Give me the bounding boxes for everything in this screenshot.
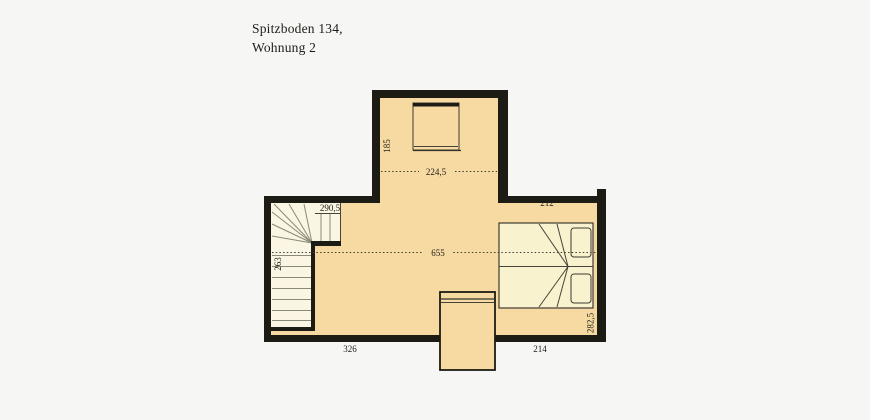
- floor-plan: 224,5 655 212 290,5 326 214 185 263 282,…: [0, 0, 870, 420]
- plan-title: Spitzboden 134, Wohnung 2: [252, 19, 343, 57]
- dim-top-height: 185: [382, 139, 392, 153]
- main-wall-left: [264, 196, 271, 342]
- dim-bottom-right-width: 214: [533, 344, 547, 354]
- dim-room-width: 655: [431, 248, 445, 258]
- main-wall-bottom-left: [264, 335, 442, 342]
- main-wall-top-left: [264, 196, 378, 203]
- upper-room-wall-left: [372, 90, 380, 203]
- wardrobe-body: [413, 103, 459, 150]
- upper-room-wall-right: [498, 90, 508, 203]
- dim-top-width: 224,5: [426, 167, 447, 177]
- dim-stair-width: 290,5: [320, 203, 341, 213]
- double-bed: [499, 223, 593, 308]
- main-wall-bottom-right: [492, 335, 606, 342]
- main-wall-right: [597, 189, 606, 342]
- dim-stair-height: 263: [273, 257, 283, 271]
- dim-bottom-left-width: 326: [343, 344, 357, 354]
- upper-room-wall-top: [372, 90, 508, 98]
- bed-pillow-right: [571, 274, 591, 303]
- dim-right-height: 282,5: [586, 312, 596, 333]
- wardrobe-top-edge: [413, 103, 459, 107]
- page: Spitzboden 134, Wohnung 2: [0, 0, 870, 420]
- plan-title-line2: Wohnung 2: [252, 38, 343, 57]
- dormer-body: [440, 292, 495, 370]
- wardrobe: [413, 103, 461, 151]
- dormer-bay: [440, 292, 495, 370]
- main-wall-top-right: [502, 196, 606, 203]
- plan-title-line1: Spitzboden 134,: [252, 19, 343, 38]
- dim-right-room-width: 212: [540, 198, 554, 208]
